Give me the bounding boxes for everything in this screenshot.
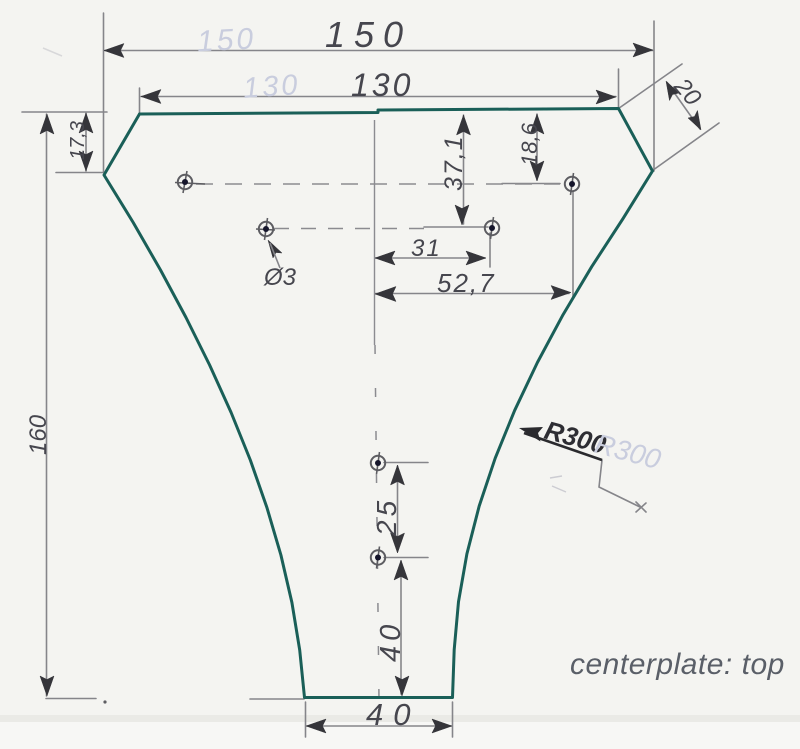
svg-text:52,7: 52,7 bbox=[437, 268, 496, 298]
svg-text:40: 40 bbox=[366, 697, 420, 732]
svg-text:18,6: 18,6 bbox=[517, 122, 542, 166]
svg-text:Ø3: Ø3 bbox=[263, 264, 297, 291]
svg-text:centerplate: top: centerplate: top bbox=[570, 648, 785, 681]
svg-text:130: 130 bbox=[351, 67, 413, 103]
svg-text:17,3: 17,3 bbox=[67, 121, 89, 160]
svg-text:160: 160 bbox=[25, 414, 52, 455]
svg-text:150: 150 bbox=[196, 22, 257, 58]
svg-text:25: 25 bbox=[371, 497, 402, 537]
svg-text:150: 150 bbox=[325, 14, 412, 55]
svg-text:130: 130 bbox=[242, 69, 301, 105]
svg-text:37,1: 37,1 bbox=[440, 134, 468, 191]
svg-text:40: 40 bbox=[375, 620, 407, 662]
svg-text:31: 31 bbox=[411, 235, 442, 262]
